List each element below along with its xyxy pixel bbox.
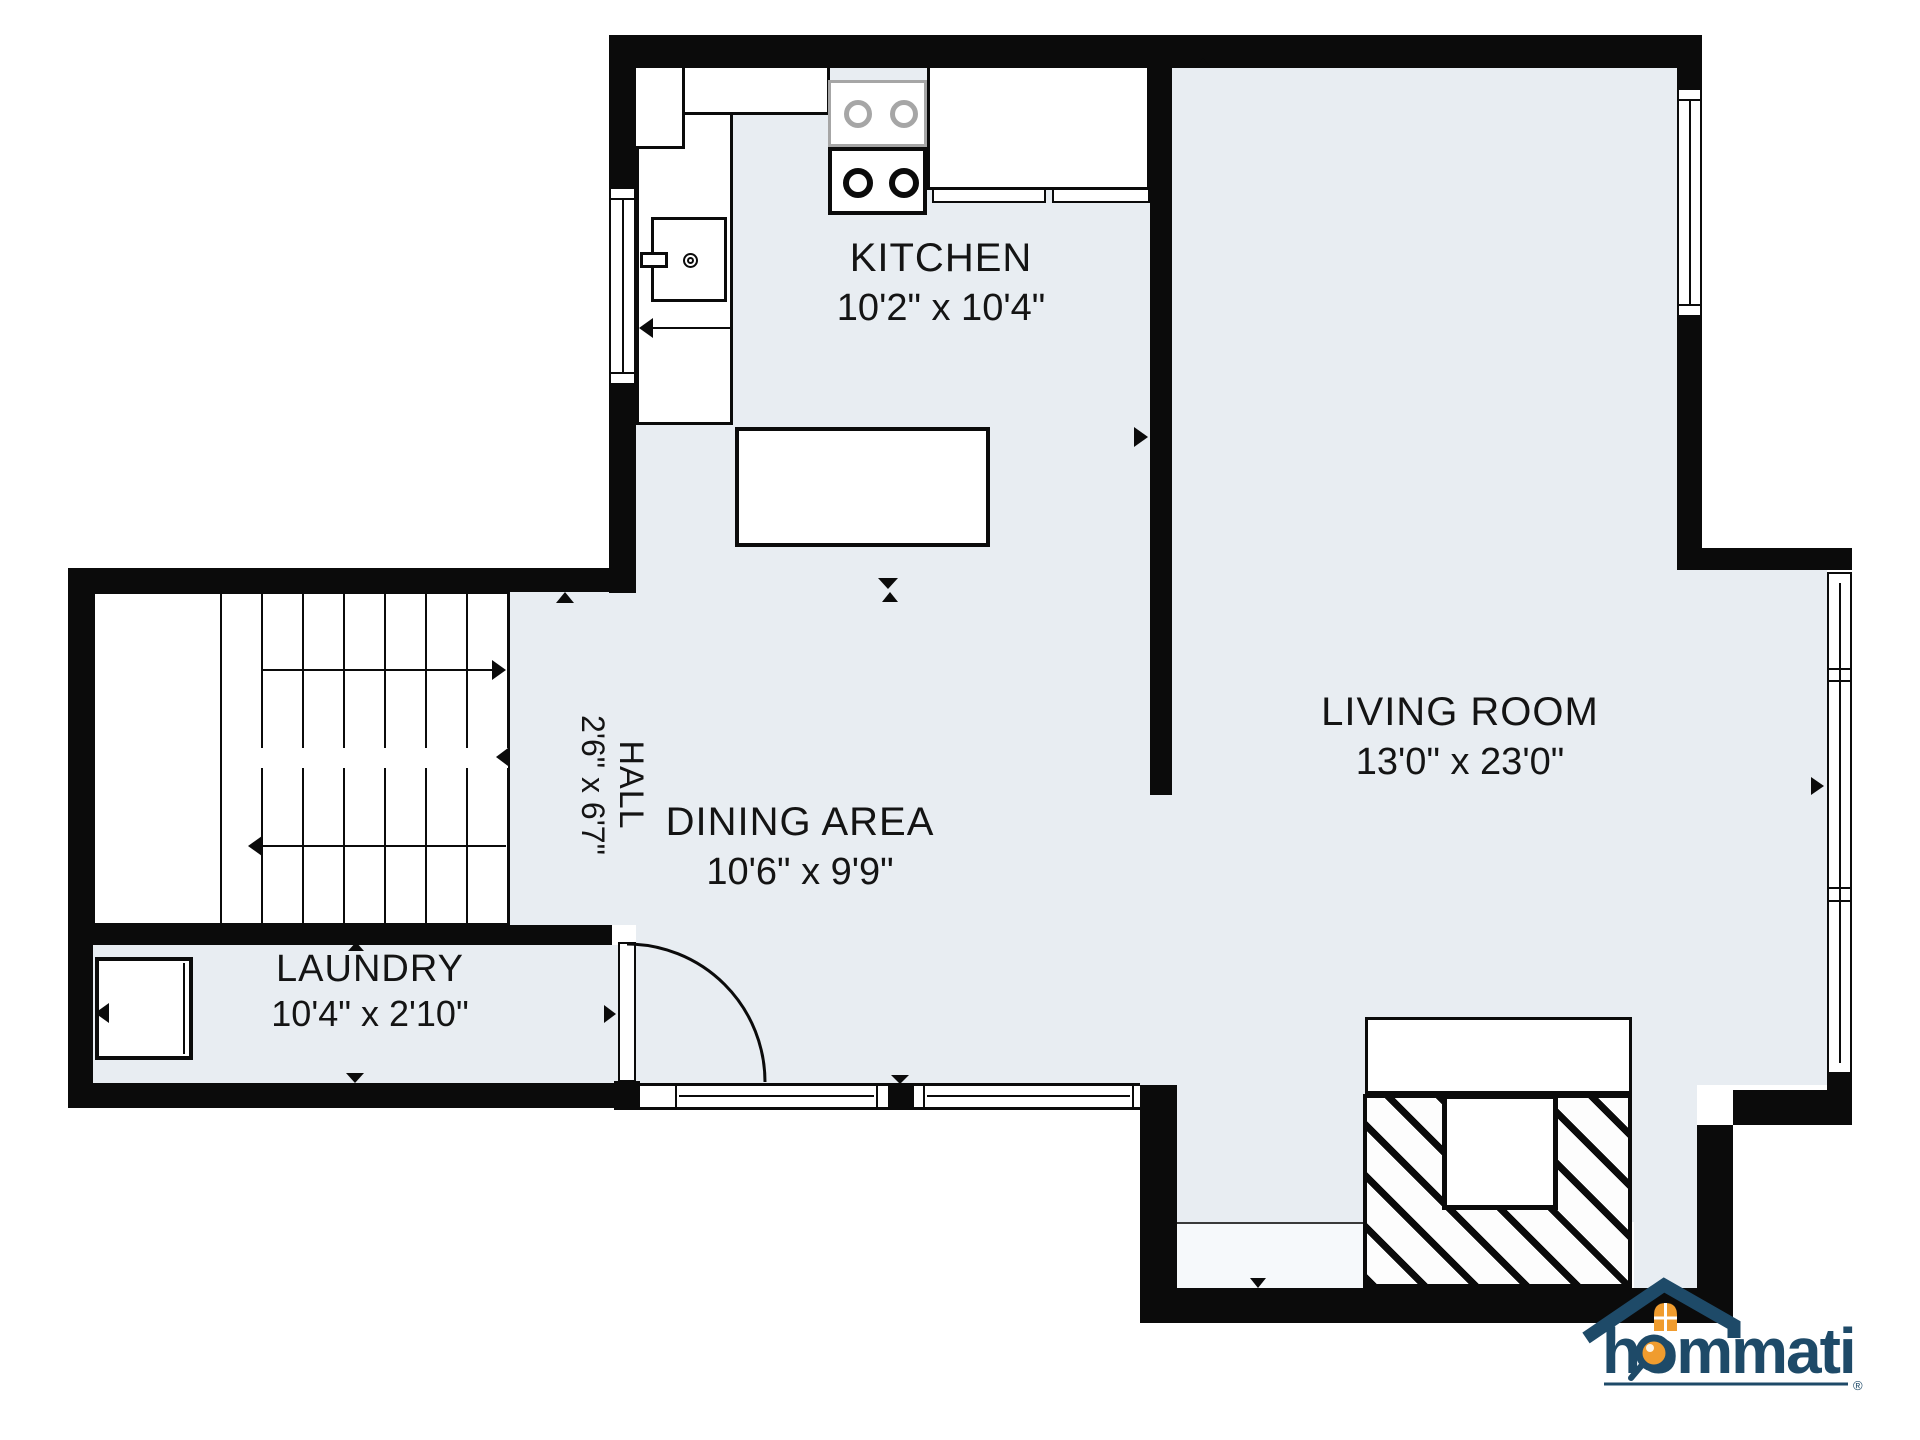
laundry-door-leaf: [618, 942, 636, 1082]
laundry-dims: 10'4" x 2'10": [271, 993, 468, 1035]
marker-kitchen-living-wall: [1134, 427, 1148, 447]
kitchen-counter-right: [927, 68, 1150, 190]
stair-down-arrow-head: [248, 836, 262, 856]
bottom-right-wall-horizontal: [1733, 1090, 1852, 1125]
magnifier-icon: [1631, 1338, 1669, 1378]
door-hinge-wall-block: [614, 1081, 640, 1110]
fireplace-hearth: [1365, 1017, 1632, 1094]
laundry-bottom-wall: [68, 1083, 618, 1108]
right-wall-top-b: [1677, 317, 1702, 548]
stair-up-arrow-head: [492, 660, 506, 680]
kitchen-name: KITCHEN: [837, 236, 1045, 281]
cabinet-front-right: [1052, 188, 1150, 203]
logo-wordmark: hommati: [1602, 1315, 1855, 1387]
marker-living-top: [1195, 58, 1211, 68]
marker-kitchen-left-head: [639, 318, 653, 338]
living-room-window-top-right: [1677, 88, 1702, 317]
dining-area-label: DINING AREA 10'6" x 9'9": [666, 800, 935, 894]
kitchen-left-wall-lower: [609, 385, 636, 593]
living-room-floor-mid: [1172, 570, 1827, 1085]
marker-patio: [1250, 1278, 1266, 1288]
laundry-top-wall: [68, 925, 612, 945]
floor-sliver: [1150, 795, 1172, 1085]
kitchen-counter-top-stub: [636, 68, 685, 149]
registered-mark: ®: [1853, 1378, 1863, 1393]
stair-down-arrow-line: [262, 845, 506, 847]
bottom-right-wall-vertical: [1697, 1125, 1733, 1288]
kitchen-window: [609, 187, 636, 385]
kitchen-living-wall: [1150, 68, 1172, 795]
hall-top-wall: [68, 568, 636, 592]
washer-unit: [95, 957, 193, 1060]
exterior-wall-top: [609, 35, 1702, 68]
cabinet-front-left: [932, 188, 1046, 203]
marker-dining-double-down: [878, 578, 898, 589]
right-wall-mid-stub: [1827, 1074, 1852, 1090]
marker-kitchen-left-line: [645, 327, 733, 329]
living-room-floor-upper: [1172, 68, 1677, 570]
marker-living-right-wall: [1811, 777, 1824, 795]
kitchen-island: [735, 427, 990, 547]
divider-end-marker: [496, 748, 508, 766]
dining-area-dims: 10'6" x 9'9": [666, 851, 935, 894]
marker-hall-wall: [556, 592, 574, 603]
window-wall-post: [888, 1083, 914, 1110]
laundry-name: LAUNDRY: [271, 948, 468, 991]
kitchen-label: KITCHEN 10'2" x 10'4": [837, 236, 1045, 330]
marker-laundry-left: [95, 1003, 109, 1023]
hall-name: HALL: [611, 705, 650, 865]
marker-laundry-right: [604, 1005, 616, 1023]
floor-plan: KITCHEN 10'2" x 10'4" LIVING ROOM 13'0" …: [0, 0, 1920, 1440]
living-room-window-right: [1827, 572, 1852, 1074]
bottom-block-left-wall: [1140, 1085, 1177, 1288]
hall-label: HALL 2'6" x 6'7": [564, 705, 650, 865]
living-room-floor-beside-fireplace: [1634, 1222, 1697, 1288]
hall-dims: 2'6" x 6'7": [574, 705, 611, 865]
patio-strip: [1177, 1222, 1367, 1290]
exterior-wall-bottom: [1140, 1288, 1733, 1323]
living-room-label: LIVING ROOM 13'0" x 23'0": [1321, 690, 1599, 784]
marker-dining-double-up: [882, 592, 898, 602]
marker-window-post: [891, 1075, 909, 1084]
dining-window-1: [675, 1086, 878, 1107]
dining-area-name: DINING AREA: [666, 800, 935, 845]
stove-back-burners: [828, 80, 927, 147]
stove-front-burners: [828, 147, 927, 215]
exterior-wall-left: [68, 568, 93, 1108]
marker-stove-top: [866, 57, 884, 68]
dining-window-2: [923, 1086, 1134, 1107]
right-step-wall: [1677, 548, 1852, 570]
living-room-dims: 13'0" x 23'0": [1321, 741, 1599, 784]
fireplace-firebox: [1442, 1094, 1558, 1210]
stair-up-arrow-line: [262, 669, 492, 671]
right-wall-top-a: [1677, 68, 1702, 88]
living-room-name: LIVING ROOM: [1321, 690, 1599, 735]
laundry-label: LAUNDRY 10'4" x 2'10": [271, 948, 468, 1035]
kitchen-left-wall-upper: [609, 35, 636, 187]
sink-drain-icon-inner: [687, 257, 694, 264]
marker-laundry-bottom: [346, 1073, 364, 1083]
sink-faucet: [640, 252, 668, 268]
kitchen-dims: 10'2" x 10'4": [837, 287, 1045, 330]
